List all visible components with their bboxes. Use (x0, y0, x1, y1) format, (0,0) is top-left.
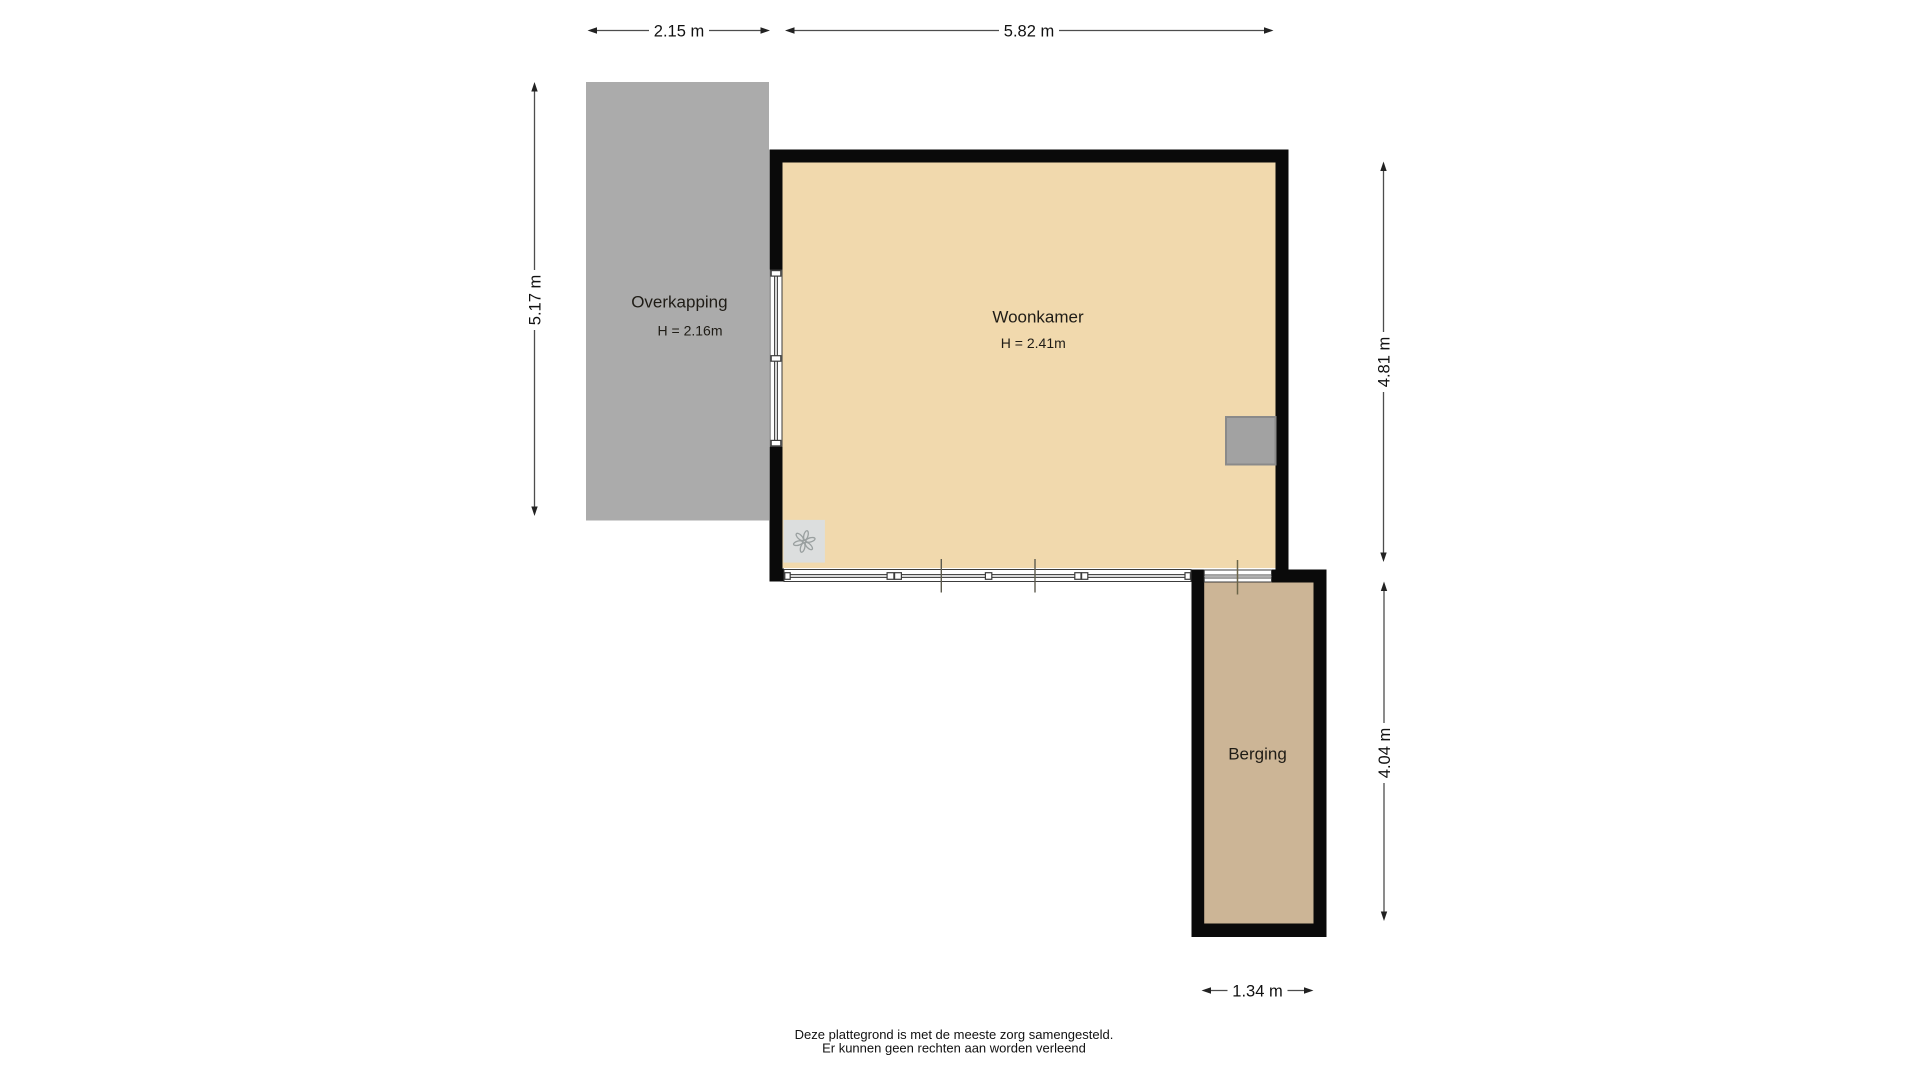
svg-text:Overkapping: Overkapping (631, 293, 727, 312)
svg-text:4.04 m: 4.04 m (1376, 728, 1394, 778)
svg-text:5.82 m: 5.82 m (1004, 22, 1054, 40)
svg-text:Woonkamer: Woonkamer (992, 308, 1084, 327)
svg-text:H = 2.16m: H = 2.16m (658, 322, 723, 338)
svg-text:Er kunnen geen rechten aan wor: Er kunnen geen rechten aan worden verlee… (822, 1040, 1086, 1055)
svg-text:5.17 m: 5.17 m (526, 275, 544, 325)
svg-text:4.81 m: 4.81 m (1375, 337, 1393, 387)
svg-text:1.34 m: 1.34 m (1232, 982, 1282, 1000)
svg-text:2.15 m: 2.15 m (654, 22, 704, 40)
svg-text:Berging: Berging (1228, 744, 1287, 763)
svg-text:H = 2.41m: H = 2.41m (1001, 335, 1066, 351)
